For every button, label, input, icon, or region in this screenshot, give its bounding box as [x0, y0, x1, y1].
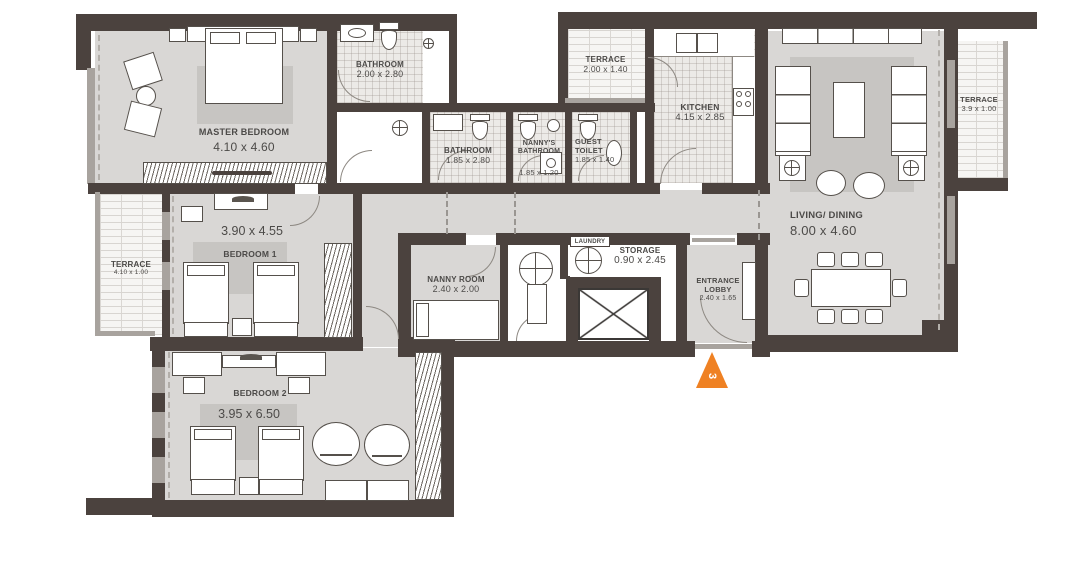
wardrobe [415, 352, 442, 500]
room-label-bedroom1: BEDROOM 1 [205, 249, 295, 259]
desk [276, 352, 326, 376]
wall [645, 12, 1037, 29]
room-dims: 2.00 x 1.40 [566, 64, 645, 74]
room-dims: 4.10 x 4.60 [196, 140, 292, 154]
wall [441, 348, 454, 503]
curtain-dashed [172, 196, 174, 334]
room-dims: 4.10 x 1.00 [101, 269, 161, 277]
room-dims: 3.9 x 1.00 [953, 105, 1005, 114]
wardrobe [324, 243, 352, 338]
pillow [210, 32, 240, 44]
dining-chair [817, 309, 835, 324]
wall [327, 14, 337, 186]
nightstand [300, 28, 317, 42]
room-name: ENTRANCE LOBBY [689, 277, 747, 295]
wall [560, 12, 655, 29]
room-name: BATHROOM [338, 60, 422, 69]
unit-marker-icon: 3 [696, 352, 728, 388]
elevator-handle [598, 283, 638, 288]
pillow [246, 32, 276, 44]
wall [676, 245, 687, 346]
wall [630, 105, 637, 192]
side-table [181, 206, 203, 222]
shower-drain-icon [392, 120, 408, 136]
wall [560, 245, 568, 279]
room-label-storage: STORAGE 0.90 x 2.45 [604, 246, 676, 267]
basin-pedestal [527, 284, 547, 324]
ceiling-light-icon [423, 38, 434, 49]
stove-burner [745, 91, 751, 97]
room-dims: 8.00 x 4.60 [790, 223, 900, 238]
pillow [187, 265, 225, 276]
sink-basin [348, 28, 366, 38]
window-wall [152, 457, 165, 483]
room-label-kitchen: KITCHEN 4.15 x 2.85 [655, 102, 745, 123]
pillow [257, 265, 295, 276]
round-chair-seat [320, 454, 352, 456]
window-wall [162, 262, 170, 290]
lamp-icon [903, 160, 919, 176]
dining-chair [865, 252, 883, 267]
basin-icon [547, 119, 560, 132]
room-name: TERRACE [566, 55, 645, 64]
wall [645, 14, 654, 186]
dining-table [811, 269, 891, 307]
opening-dashed [514, 192, 516, 234]
opening-dashed [446, 192, 448, 234]
room-dims: 1.85 x 1.20 [511, 169, 567, 178]
door-arc [340, 150, 372, 182]
room-name: NANNY'S BATHROOM [511, 140, 567, 157]
wall [318, 183, 660, 194]
wall [922, 320, 958, 352]
stove-burner [736, 91, 742, 97]
stool [183, 377, 205, 394]
wall [353, 194, 362, 346]
toilet-tank [379, 22, 399, 30]
terrace-rail [95, 192, 100, 335]
floor-plan: MASTER BEDROOM 4.10 x 4.60 BATHROOM 2.00… [0, 0, 1077, 588]
wall [76, 14, 91, 70]
wall [950, 178, 1008, 191]
sideboard [782, 28, 922, 44]
room-label-entrance-lobby: ENTRANCE LOBBY 2.40 x 1.65 [689, 277, 747, 303]
pouf [816, 170, 846, 196]
room-label-terrace-left: TERRACE 4.10 x 1.00 [101, 260, 161, 277]
room-name: NANNY ROOM [420, 275, 492, 284]
wall [330, 103, 655, 112]
pillow [194, 429, 232, 440]
pillow [416, 303, 429, 337]
pouf [853, 172, 885, 199]
bed-foot-pad [184, 322, 228, 337]
room-name: TERRACE [101, 260, 161, 269]
nightstand [232, 318, 252, 336]
console-mirror [240, 354, 262, 360]
wall [422, 105, 430, 192]
nightstand [169, 28, 186, 42]
room-dims: 1.85 x 2.80 [430, 155, 506, 165]
room-label-guest-toilet: GUEST TOILET 1.85 x 1.40 [573, 138, 615, 165]
entrance-sill [695, 344, 752, 349]
round-chair [364, 424, 410, 466]
dining-chair [841, 252, 859, 267]
room-label-nanny-room: NANNY ROOM 2.40 x 2.00 [420, 275, 492, 295]
room-label-living-dining: LIVING/ DINING 8.00 x 4.60 [790, 210, 900, 239]
kitchen-sink-divider [696, 34, 698, 52]
window-wall [947, 60, 955, 128]
coffee-table [833, 82, 865, 138]
terrace-rail [95, 331, 155, 336]
window-wall [162, 212, 170, 240]
lamp-icon [784, 160, 800, 176]
laundry-machine-icon [575, 247, 602, 274]
desk [172, 352, 222, 376]
elevator-wall [649, 276, 661, 349]
room-dims: 2.00 x 2.80 [338, 69, 422, 80]
room-dims: 2.40 x 2.00 [420, 284, 492, 295]
wall [449, 14, 457, 112]
toilet-tank [470, 114, 490, 121]
elevator-icon [578, 288, 649, 340]
round-chair-seat [372, 455, 402, 457]
dining-chair [892, 279, 907, 297]
room-label-nannys-bathroom: NANNY'S BATHROOM 1.85 x 1.20 [511, 140, 567, 177]
wall [758, 335, 930, 352]
nightstand [239, 477, 259, 495]
dining-chair [865, 309, 883, 324]
opening-dashed [758, 190, 760, 240]
wall [755, 240, 768, 346]
dresser-mirror [232, 196, 254, 202]
window-wall [87, 68, 95, 184]
curtain-dashed [98, 35, 100, 180]
room-label-terrace-right: TERRACE 3.9 x 1.00 [953, 96, 1005, 114]
room-name: LIVING/ DINING [790, 210, 900, 221]
wall [398, 245, 411, 346]
window-wall [152, 367, 165, 393]
room-name: KITCHEN [655, 102, 745, 112]
window-wall [152, 412, 165, 438]
sofa [775, 66, 811, 156]
bed-foot-pad [254, 322, 298, 337]
room-label-master-bedroom: MASTER BEDROOM 4.10 x 4.60 [196, 127, 292, 154]
bed-foot-pad [191, 479, 235, 495]
room-label-bathroom-shared: BATHROOM 1.85 x 2.80 [430, 146, 506, 165]
bench-divider [366, 481, 368, 500]
elevator-wall [566, 276, 578, 349]
wall [500, 245, 508, 343]
round-chair [312, 422, 360, 466]
wall [150, 337, 363, 351]
wardrobe-handle [212, 171, 272, 175]
room-dims: 0.90 x 2.45 [604, 255, 676, 267]
room-dims: 4.15 x 2.85 [655, 112, 745, 123]
room-label-bedroom2: BEDROOM 2 [215, 388, 305, 398]
room-name: STORAGE [604, 246, 676, 255]
pedestal-basin-icon [519, 252, 553, 286]
room-dims-bedroom1: 3.90 x 4.55 [202, 224, 302, 238]
room-dims: 2.40 x 1.65 [689, 295, 747, 303]
dining-chair [817, 252, 835, 267]
stove-burner [745, 101, 751, 107]
door-sill [692, 238, 735, 242]
window-dashed [938, 30, 940, 330]
sink [433, 114, 463, 131]
room-dims-bedroom2: 3.95 x 6.50 [203, 407, 295, 421]
wall [755, 14, 768, 190]
wall [86, 498, 154, 515]
wall [398, 233, 466, 245]
sofa [891, 66, 927, 156]
room-dims: 1.85 x 1.40 [575, 156, 631, 165]
room-label-master-bathroom: BATHROOM 2.00 x 2.80 [338, 60, 422, 80]
toilet-tank [578, 114, 598, 121]
unit-marker-number: 3 [706, 373, 718, 379]
pillow [262, 429, 300, 440]
room-name: MASTER BEDROOM [196, 127, 292, 138]
wall [152, 500, 454, 517]
bed-foot-pad [259, 479, 303, 495]
window-wall [947, 196, 955, 264]
terrace-sill [565, 98, 645, 103]
room-name: BATHROOM [430, 146, 506, 155]
toilet-tank [518, 114, 538, 121]
room-label-terrace-top: TERRACE 2.00 x 1.40 [566, 55, 645, 74]
dining-chair [794, 279, 809, 297]
dining-chair [841, 309, 859, 324]
room-name: GUEST TOILET [575, 138, 615, 156]
curtain-dashed [168, 352, 170, 498]
